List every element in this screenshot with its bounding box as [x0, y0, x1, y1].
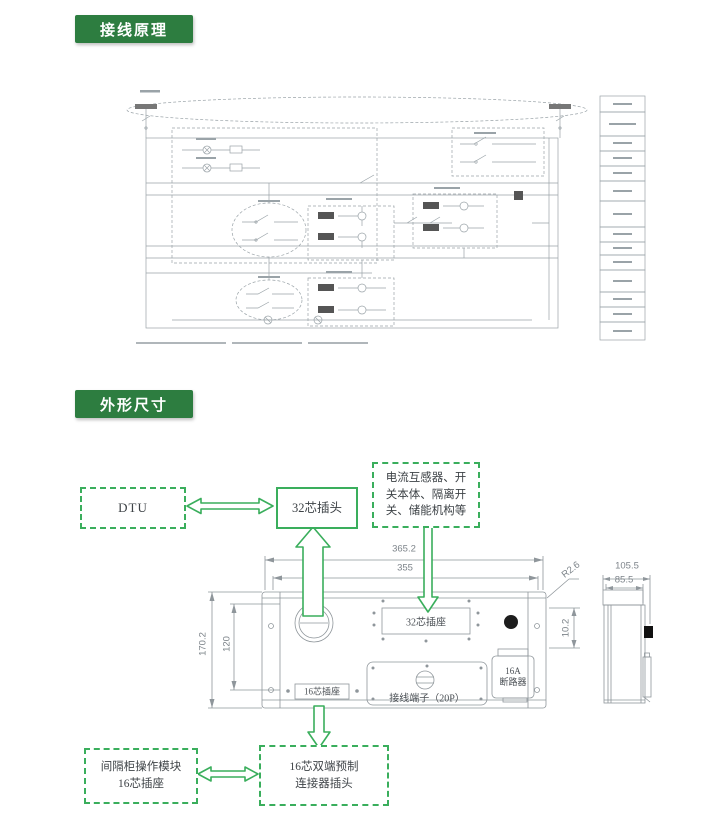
contact-block-upper [452, 128, 544, 176]
series-contacts [394, 217, 452, 223]
aux-switch-ellipse-lower [236, 276, 302, 320]
dim-front-width-inner: 355 [397, 563, 413, 574]
terminal-legend-column [600, 96, 645, 340]
bay-line-2: 16芯插座 [118, 776, 164, 793]
label-terminal-20p: 接线端子（20P） [389, 690, 465, 705]
callout-cable-16: 16芯双端预制 连接器插头 [259, 745, 389, 806]
manual-page: { "badges": { "wiring": "接线原理", "outline… [0, 0, 726, 818]
aux-switch-ellipse [232, 200, 306, 257]
callout-plug-32: 32芯插头 [276, 487, 358, 529]
breaker-line-2: 断路器 [499, 677, 526, 688]
arrow-bay-cable [198, 767, 258, 781]
arrow-devices-to-socket32 [418, 527, 438, 612]
callout-primary-devices: 电流互感器、开 关本体、隔离开 关、储能机构等 [372, 462, 480, 528]
label-socket-16: 16芯插座 [304, 685, 340, 698]
callout-dtu: DTU [80, 487, 186, 529]
breaker-line-1: 16A [499, 666, 526, 677]
lamp-block [172, 128, 377, 263]
devices-line-3: 关、储能机构等 [386, 503, 467, 520]
motor-box [514, 191, 523, 200]
callout-bay-module: 间隔柜操作模块 16芯插座 [84, 748, 198, 804]
schematic-footnote [136, 342, 368, 344]
relay-box-right [413, 187, 497, 248]
cable-line-1: 16芯双端预制 [290, 759, 359, 776]
bay-line-1: 间隔柜操作模块 [101, 759, 182, 776]
devices-line-2: 关本体、隔离开 [386, 487, 467, 504]
label-breaker-16a: 16A 断路器 [499, 666, 526, 689]
devices-line-1: 电流互感器、开 [386, 470, 467, 487]
section-badge-outline: 外形尺寸 [75, 390, 193, 418]
wiring-schematic [127, 90, 645, 344]
arrow-socket16-to-cable [308, 706, 330, 748]
section-badge-wiring: 接线原理 [75, 15, 193, 43]
dim-front-height-outer: 170.2 [198, 632, 209, 656]
dim-side-inner: 85.5 [615, 575, 634, 586]
ring-bus-ellipse [127, 90, 587, 138]
bus-lines [146, 138, 558, 320]
dim-side-outer: 105.5 [615, 561, 639, 572]
label-socket-32: 32芯插座 [406, 614, 446, 629]
schematic-frame [146, 138, 558, 328]
cable-line-2: 连接器插头 [295, 776, 353, 793]
dim-hole-offset: 10.2 [561, 619, 572, 638]
callout-dtu-label: DTU [118, 499, 148, 518]
connectors [269, 183, 549, 280]
dim-front-width-outer: 365.2 [392, 544, 416, 555]
dim-front-height-inner: 120 [222, 636, 233, 652]
badge-wiring-label: 接线原理 [100, 19, 168, 40]
arrow-dtu-plug32 [187, 499, 273, 514]
relay-box-center [308, 198, 394, 260]
bus-switch [360, 175, 374, 183]
arrow-panel-to-plug32 [296, 527, 330, 616]
panel-side-view [603, 575, 653, 703]
badge-outline-label: 外形尺寸 [100, 394, 168, 415]
callout-plug-32-label: 32芯插头 [292, 499, 342, 517]
